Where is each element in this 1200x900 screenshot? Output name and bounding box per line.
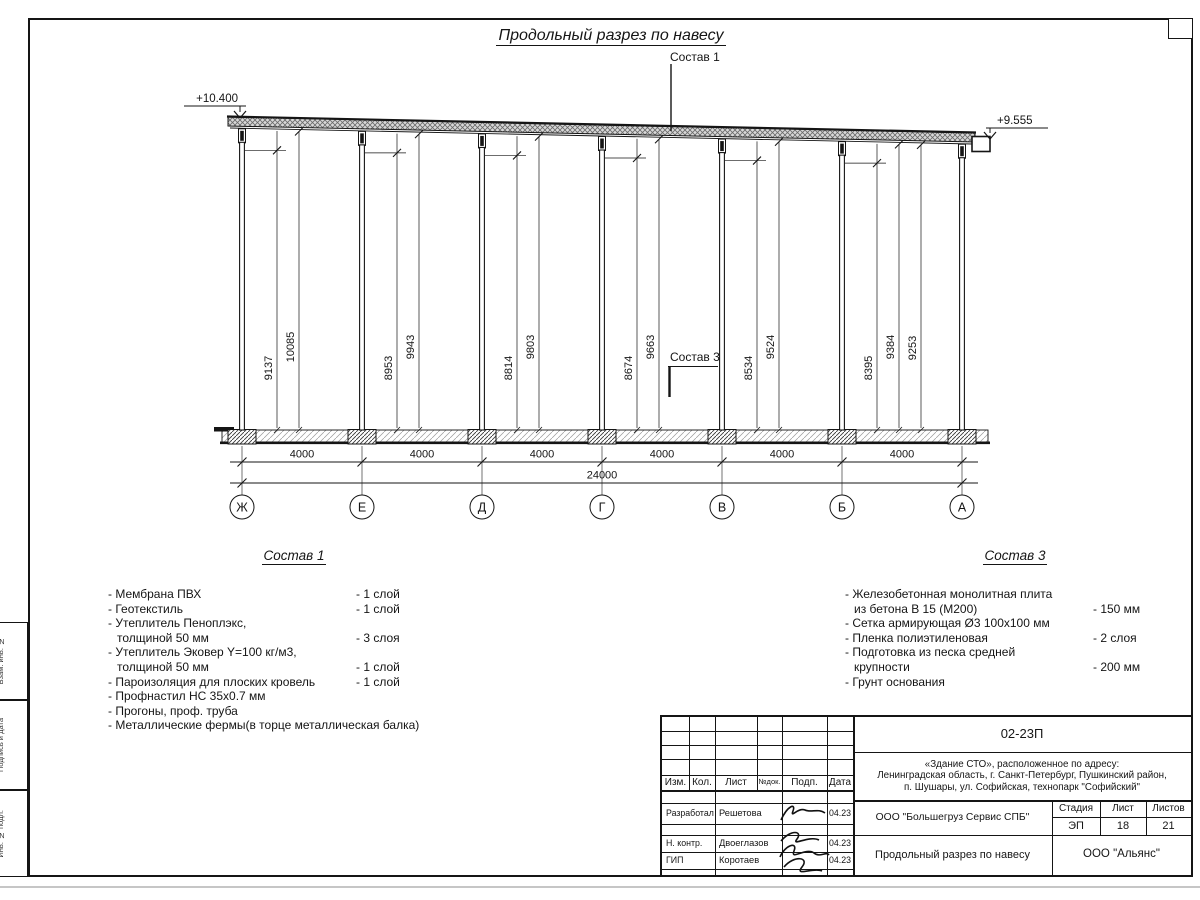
layer-item: толщиной 50 мм- 3 слоя	[108, 631, 480, 646]
sostav1-items: - Мембрана ПВХ- 1 слой- Геотекстиль- 1 с…	[108, 587, 480, 733]
layer-name: - Пароизоляция для плоских кровель	[108, 675, 315, 689]
layer-item: - Подготовка из песка средней	[845, 645, 1185, 660]
tb-line	[662, 731, 853, 732]
row-role: Разработал	[663, 803, 715, 824]
drawing-title-cell: Продольный разрез по навесу	[853, 835, 1052, 875]
layer-qty: - 3 слоя	[356, 631, 400, 646]
layer-name: толщиной 50 мм	[108, 631, 209, 645]
sheet-number: 18	[1100, 817, 1146, 835]
layer-item: - Сетка армирующая Ø3 100х100 мм	[845, 616, 1185, 631]
height-dim-value: 8953	[383, 356, 395, 380]
elevation-arrow	[990, 132, 996, 139]
height-dim-value: 8814	[503, 356, 515, 380]
drawing-sheet: Взам. инв. № Подпись и дата Инв. № подл.…	[0, 0, 1200, 900]
footing	[468, 430, 496, 445]
sheets-label: Листов	[1146, 800, 1191, 817]
sostav3-block: Состав 3 - Железобетонная монолитная пли…	[845, 548, 1185, 689]
col-ndok: №док.	[757, 775, 782, 790]
layer-item: - Грунт основания	[845, 675, 1185, 690]
bay-dim-value: 4000	[410, 449, 434, 461]
height-dim-value: 9384	[885, 335, 897, 359]
layer-name: толщиной 50 мм	[108, 660, 209, 674]
col-podp: Подп.	[782, 775, 827, 790]
layer-item: - Пароизоляция для плоских кровель- 1 сл…	[108, 675, 480, 690]
layer-item: - Железобетонная монолитная плита	[845, 587, 1185, 602]
column	[840, 155, 845, 430]
height-dim-value: 8395	[863, 356, 875, 380]
layer-name: - Прогоны, проф. труба	[108, 704, 238, 718]
layer-name: - Сетка армирующая Ø3 100х100 мм	[845, 616, 1050, 630]
layer-name: - Мембрана ПВХ	[108, 587, 201, 601]
sostav1-heading: Состав 1	[108, 548, 480, 563]
elevation-right-value: +9.555	[997, 115, 1033, 127]
height-dim-value: 9524	[765, 335, 777, 359]
layer-item: из бетона В 15 (М200)- 150 мм	[845, 602, 1185, 617]
height-dim-value: 9943	[405, 335, 417, 359]
height-dim-value: 8534	[743, 356, 755, 380]
column-bracket-core	[720, 141, 724, 151]
layer-item: - Металлические фермы(в торце металличес…	[108, 718, 480, 733]
height-dim-value: 9137	[263, 356, 275, 380]
sheets-total: 21	[1146, 817, 1191, 835]
sheet-edge	[0, 886, 1200, 888]
row-name: Двоеглазов	[716, 835, 780, 852]
signature-approvers	[776, 827, 832, 877]
layer-qty: - 1 слой	[356, 660, 400, 675]
layer-name: - Подготовка из песка средней	[845, 645, 1015, 659]
footing	[708, 430, 736, 445]
row-name: Коротаев	[716, 852, 780, 869]
doc-number: 02-23П	[853, 717, 1191, 752]
tb-line	[662, 745, 853, 746]
column-bracket-core	[240, 131, 244, 141]
layer-qty: - 1 слой	[356, 602, 400, 617]
row-date: 04.23	[827, 803, 853, 824]
layer-name: - Утеплитель Пеноплэкс,	[108, 616, 246, 630]
column-bracket-core	[360, 133, 364, 143]
row-role: ГИП	[663, 852, 715, 869]
layer-item: - Утеплитель Пеноплэкс,	[108, 616, 480, 631]
column	[960, 158, 965, 430]
bay-dim-value: 4000	[290, 449, 314, 461]
axis-letter: В	[718, 501, 726, 515]
layer-item: - Утеплитель Эковер Y=100 кг/м3,	[108, 645, 480, 660]
total-dim-value: 24000	[587, 470, 618, 482]
sostav3-items: - Железобетонная монолитная плитаиз бето…	[845, 587, 1185, 689]
col-list: Лист	[715, 775, 757, 790]
footing	[828, 430, 856, 445]
stage-label: Стадия	[1052, 800, 1100, 817]
column-bracket-core	[600, 139, 604, 149]
column	[480, 147, 485, 430]
column	[360, 145, 365, 430]
axis-letter: Е	[358, 501, 366, 515]
tb-line	[662, 759, 853, 760]
layer-item: - Пленка полиэтиленовая- 2 слоя	[845, 631, 1185, 646]
col-data: Дата	[827, 775, 853, 790]
layer-name: - Грунт основания	[845, 675, 945, 689]
layer-item: толщиной 50 мм- 1 слой	[108, 660, 480, 675]
footing	[588, 430, 616, 445]
layer-name: - Пленка полиэтиленовая	[845, 631, 988, 645]
roof-end-beam	[972, 137, 990, 152]
height-dim-value: 9663	[645, 335, 657, 359]
col-izm: Изм.	[662, 775, 689, 790]
layer-name: крупности	[845, 660, 910, 674]
height-dim-value: 10085	[285, 332, 297, 363]
layer-item: - Профнастил НС 35х0.7 мм	[108, 689, 480, 704]
layer-name: - Геотекстиль	[108, 602, 183, 616]
org-cell: ООО "Альянс"	[1052, 835, 1191, 875]
layer-name: - Утеплитель Эковер Y=100 кг/м3,	[108, 645, 297, 659]
signature-developer	[778, 801, 828, 827]
column-bracket-core	[960, 146, 964, 156]
sostav3-heading: Состав 3	[845, 548, 1185, 563]
layer-item: крупности- 200 мм	[845, 660, 1185, 675]
bay-dim-value: 4000	[530, 449, 554, 461]
column	[240, 142, 245, 430]
sostav1-block: Состав 1 - Мембрана ПВХ- 1 слой- Геотекс…	[108, 548, 480, 733]
height-dim-value: 8674	[623, 356, 635, 380]
layer-item: - Прогоны, проф. труба	[108, 704, 480, 719]
layer-qty: - 150 мм	[1093, 602, 1140, 617]
height-dim-value: 9253	[907, 336, 919, 360]
column	[600, 150, 605, 430]
layer-qty: - 200 мм	[1093, 660, 1140, 675]
axis-letter: Ж	[236, 501, 248, 515]
layer-name: - Железобетонная монолитная плита	[845, 587, 1052, 601]
layer-name: - Профнастил НС 35х0.7 мм	[108, 689, 266, 703]
row-role: Н. контр.	[663, 835, 715, 852]
bay-dim-value: 4000	[650, 449, 674, 461]
layer-qty: - 1 слой	[356, 587, 400, 602]
elevation-left-value: +10.400	[196, 93, 238, 105]
axis-letter: А	[958, 501, 967, 515]
row-name: Решетова	[716, 803, 780, 824]
layer-item: - Геотекстиль- 1 слой	[108, 602, 480, 617]
bay-dim-value: 4000	[770, 449, 794, 461]
column	[720, 153, 725, 430]
layer-qty: - 2 слоя	[1093, 631, 1137, 646]
designer-company: ООО "Большегруз Сервис СПБ"	[853, 800, 1052, 835]
project-address: «Здание СТО», расположенное по адресу: Л…	[853, 752, 1191, 800]
height-dim-value: 9803	[525, 335, 537, 359]
column-bracket-core	[480, 136, 484, 146]
footing	[948, 430, 976, 445]
col-kol: Кол.	[689, 775, 715, 790]
footing	[348, 430, 376, 445]
tb-line	[662, 790, 853, 792]
layer-qty: - 1 слой	[356, 675, 400, 690]
bay-dim-value: 4000	[890, 449, 914, 461]
axis-letter: Б	[838, 501, 846, 515]
layer-item: - Мембрана ПВХ- 1 слой	[108, 587, 480, 602]
axis-letter: Г	[599, 501, 606, 515]
title-block: 02-23П «Здание СТО», расположенное по ад…	[660, 715, 1193, 877]
layer-name: - Металлические фермы(в торце металличес…	[108, 718, 419, 732]
axis-letter: Д	[478, 501, 487, 515]
sheet-label: Лист	[1100, 800, 1146, 817]
footing	[228, 430, 256, 445]
column-bracket-core	[840, 144, 844, 154]
layer-name: из бетона В 15 (М200)	[845, 602, 977, 616]
stage-value: ЭП	[1052, 817, 1100, 835]
